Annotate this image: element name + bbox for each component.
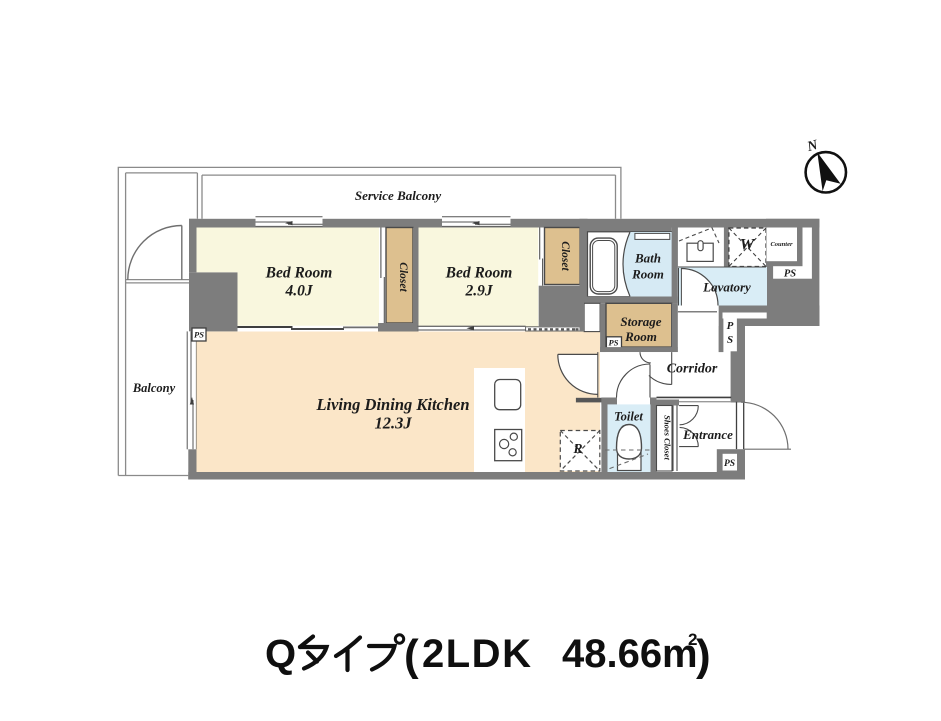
svg-text:Corridor: Corridor [667,362,718,377]
svg-text:Bed Room: Bed Room [265,265,333,282]
svg-text:(: ( [404,631,419,680]
svg-text:Storage: Storage [620,314,661,329]
svg-text:W: W [740,237,756,254]
svg-text:Toilet: Toilet [614,410,643,424]
svg-text:Room: Room [631,267,664,282]
svg-text:Q: Q [265,632,296,676]
svg-text:4.0J: 4.0J [284,283,313,300]
svg-text:R: R [572,441,582,456]
svg-text:Room: Room [624,329,657,344]
svg-text:): ) [696,631,711,680]
svg-text:P: P [727,320,734,332]
svg-text:PS: PS [724,459,735,469]
svg-text:2LDK: 2LDK [422,632,532,676]
svg-text:Shoes Closet: Shoes Closet [663,415,673,460]
svg-text:Service Balcony: Service Balcony [355,188,442,203]
svg-text:Bed Room: Bed Room [445,265,513,282]
svg-text:PS: PS [609,338,619,348]
svg-text:Closet: Closet [559,241,571,271]
svg-text:12.3J: 12.3J [374,414,412,433]
svg-text:PS: PS [194,330,204,340]
svg-text:Counter: Counter [770,241,793,248]
svg-text:Entrance: Entrance [682,427,733,442]
svg-text:PS: PS [784,269,796,280]
svg-text:48.66: 48.66 [562,632,662,676]
svg-text:Closet: Closet [397,262,409,292]
svg-text:Bath: Bath [634,251,661,266]
svg-text:S: S [727,334,733,346]
svg-text:Lavatory: Lavatory [702,280,751,295]
svg-text:Living Dining Kitchen: Living Dining Kitchen [315,395,469,414]
svg-text:2.9J: 2.9J [464,283,493,300]
svg-text:Balcony: Balcony [132,381,176,395]
